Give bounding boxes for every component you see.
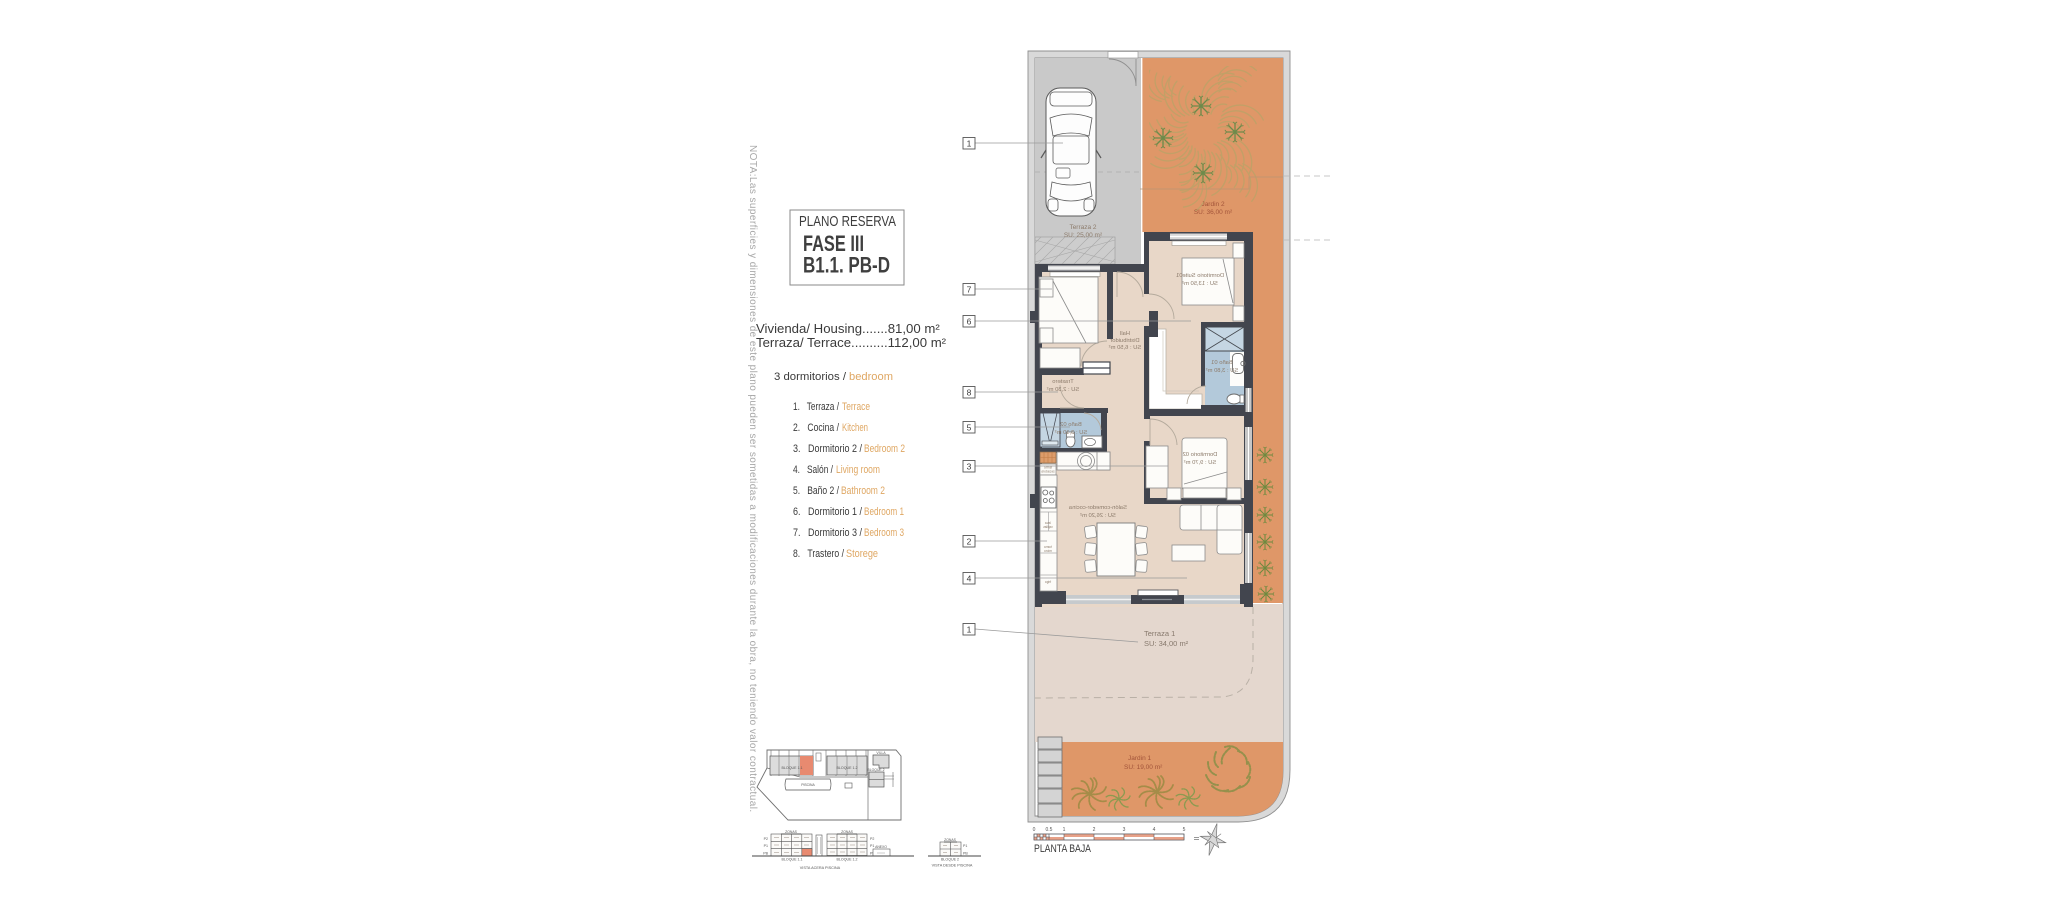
svg-text:ANEXO: ANEXO bbox=[875, 845, 887, 849]
svg-text:SU : 13,50 m²: SU : 13,50 m² bbox=[1182, 281, 1218, 287]
svg-text:SU: 25,00 m²: SU: 25,00 m² bbox=[1064, 232, 1103, 239]
svg-text:4: 4 bbox=[967, 574, 972, 584]
svg-text:8. Trastero /: 8. Trastero / bbox=[793, 548, 844, 560]
svg-text:P1: P1 bbox=[963, 844, 967, 848]
svg-text:3: 3 bbox=[1123, 827, 1126, 833]
svg-text:Distribuidor: Distribuidor bbox=[1110, 338, 1139, 344]
svg-text:5. Baño 2 /: 5. Baño 2 / bbox=[793, 485, 839, 497]
svg-text:Terrace: Terrace bbox=[842, 401, 870, 413]
svg-text:Vivienda/ Housing.......81,00: Vivienda/ Housing.......81,00 m² bbox=[756, 321, 940, 336]
svg-text:bedroom: bedroom bbox=[849, 371, 893, 383]
svg-text:VISTA ACERA PISCINA: VISTA ACERA PISCINA bbox=[800, 866, 841, 870]
svg-text:NOTA:Las superficies y dimensi: NOTA:Las superficies y dimensiones de es… bbox=[747, 145, 758, 813]
svg-text:3. Dormitorio 2 /: 3. Dormitorio 2 / bbox=[793, 443, 862, 455]
svg-text:P1: P1 bbox=[870, 844, 874, 848]
svg-text:P1: P1 bbox=[764, 844, 768, 848]
svg-text:3 dormitorios /: 3 dormitorios / bbox=[774, 371, 847, 383]
svg-text:SU : 3,10 m²: SU : 3,10 m² bbox=[1055, 430, 1088, 436]
svg-text:SU: 34,00 m²: SU: 34,00 m² bbox=[1144, 639, 1189, 648]
svg-text:8: 8 bbox=[967, 388, 972, 398]
svg-text:PLANO RESERVA: PLANO RESERVA bbox=[799, 214, 896, 230]
svg-text:4: 4 bbox=[1153, 827, 1156, 833]
svg-text:SU : 6,50 m²: SU : 6,50 m² bbox=[1109, 345, 1142, 351]
svg-text:Bedroom 3: Bedroom 3 bbox=[864, 527, 904, 539]
svg-text:VILLA: VILLA bbox=[876, 751, 886, 755]
svg-text:3: 3 bbox=[967, 462, 972, 472]
svg-text:SU: 36,00 m²: SU: 36,00 m² bbox=[1194, 209, 1233, 216]
svg-text:Hall: Hall bbox=[1120, 331, 1130, 337]
svg-text:2: 2 bbox=[967, 537, 972, 547]
svg-text:BLOQUE 1.2: BLOQUE 1.2 bbox=[837, 766, 858, 770]
svg-text:2: 2 bbox=[1093, 827, 1096, 833]
svg-text:Bedroom 2: Bedroom 2 bbox=[864, 443, 905, 455]
svg-text:SU : 9,70 m²: SU : 9,70 m² bbox=[1184, 460, 1217, 466]
svg-text:Terraza/ Terrace..........112,: Terraza/ Terrace..........112,00 m² bbox=[756, 335, 947, 350]
svg-text:SU : 26,20 m²: SU : 26,20 m² bbox=[1080, 513, 1116, 519]
svg-text:BLOQUE 1.1: BLOQUE 1.1 bbox=[782, 858, 803, 862]
svg-text:P2: P2 bbox=[870, 837, 874, 841]
svg-text:Storege: Storege bbox=[846, 548, 878, 560]
svg-text:Dormitorio Suite01: Dormitorio Suite01 bbox=[1176, 273, 1224, 279]
svg-text:0.5: 0.5 bbox=[1046, 827, 1053, 833]
svg-text:VISTA DESDE PISCINA: VISTA DESDE PISCINA bbox=[932, 864, 973, 868]
svg-text:BLOQUE 2: BLOQUE 2 bbox=[941, 858, 959, 862]
svg-text:1: 1 bbox=[1063, 827, 1066, 833]
svg-text:Dormitorio 02: Dormitorio 02 bbox=[1183, 452, 1218, 458]
svg-text:BLOQUE 1.1: BLOQUE 1.1 bbox=[782, 766, 803, 770]
svg-text:Living room: Living room bbox=[836, 464, 880, 476]
svg-text:7: 7 bbox=[967, 285, 972, 295]
svg-text:1: 1 bbox=[967, 625, 972, 635]
svg-text:Bedroom 1: Bedroom 1 bbox=[864, 506, 904, 518]
svg-text:6: 6 bbox=[967, 317, 972, 327]
svg-text:0: 0 bbox=[1033, 827, 1036, 833]
svg-text:Baño 01: Baño 01 bbox=[1211, 360, 1233, 366]
svg-text:vajillas: vajillas bbox=[1043, 525, 1053, 529]
svg-text:Salón-comedor-cocina: Salón-comedor-cocina bbox=[1068, 505, 1127, 511]
svg-text:PLANTA BAJA: PLANTA BAJA bbox=[1034, 843, 1092, 855]
svg-text:Terraza 1: Terraza 1 bbox=[1144, 629, 1175, 638]
svg-text:Jardin 1: Jardin 1 bbox=[1128, 755, 1152, 762]
svg-text:Trastero: Trastero bbox=[1052, 379, 1073, 385]
svg-text:2. Cocina /: 2. Cocina / bbox=[793, 422, 839, 434]
svg-text:PISCINA: PISCINA bbox=[801, 783, 815, 787]
svg-text:ZONAS: ZONAS bbox=[944, 838, 956, 842]
svg-text:1: 1 bbox=[967, 139, 972, 149]
svg-text:5: 5 bbox=[1183, 827, 1186, 833]
svg-text:Bathroom 2: Bathroom 2 bbox=[841, 485, 885, 497]
svg-text:ZONAS: ZONAS bbox=[785, 830, 797, 834]
svg-text:Terraza 2: Terraza 2 bbox=[1069, 224, 1096, 231]
svg-text:ZONAS: ZONAS bbox=[841, 830, 853, 834]
svg-text:SU: 19,00 m²: SU: 19,00 m² bbox=[1124, 764, 1163, 771]
svg-text:5: 5 bbox=[967, 423, 972, 433]
svg-text:Jardin 2: Jardin 2 bbox=[1201, 201, 1225, 208]
svg-text:BLOQUE 2: BLOQUE 2 bbox=[868, 768, 885, 772]
svg-text:micro: micro bbox=[1044, 549, 1052, 553]
svg-text:frigo: frigo bbox=[1045, 580, 1051, 584]
svg-text:SU : 3,80 m²: SU : 3,80 m² bbox=[1206, 368, 1239, 374]
svg-text:B1.1. PB-D: B1.1. PB-D bbox=[803, 253, 890, 278]
svg-text:PB: PB bbox=[763, 852, 768, 856]
svg-text:PB: PB bbox=[963, 852, 968, 856]
svg-text:Kitchen: Kitchen bbox=[842, 422, 868, 434]
svg-text:BLOQUE 1.2: BLOQUE 1.2 bbox=[837, 858, 858, 862]
svg-text:4. Salón /: 4. Salón / bbox=[793, 464, 833, 476]
svg-text:1. Terraza /: 1. Terraza / bbox=[793, 401, 839, 413]
svg-text:P2: P2 bbox=[764, 837, 768, 841]
svg-text:secadora: secadora bbox=[1041, 470, 1054, 474]
svg-text:6. Dormitorio 1 /: 6. Dormitorio 1 / bbox=[793, 506, 862, 518]
svg-text:7. Dormitorio 3 /: 7. Dormitorio 3 / bbox=[793, 527, 862, 539]
